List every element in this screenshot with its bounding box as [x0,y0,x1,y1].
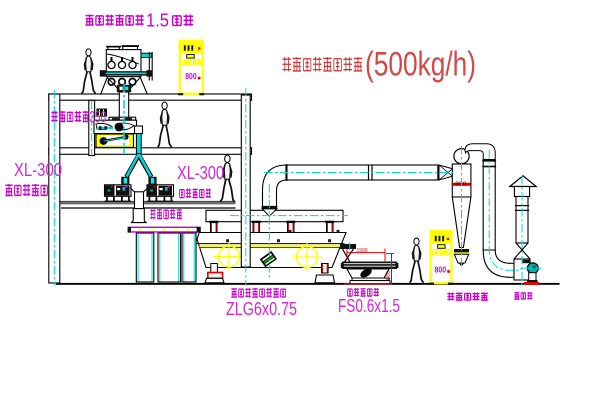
svg-text:ZLG6x0.75: ZLG6x0.75 [226,298,297,320]
svg-text:500: 500 [386,271,392,280]
svg-text:1500: 1500 [357,248,368,254]
svg-text:800: 800 [185,71,197,81]
svg-text:XL-300: XL-300 [14,160,62,181]
svg-text:800: 800 [435,264,447,274]
svg-text:1.5: 1.5 [146,11,169,31]
svg-text:(500kg/h): (500kg/h) [365,46,476,83]
svg-text:800: 800 [455,181,466,187]
svg-text:FS0.6x1.5: FS0.6x1.5 [338,296,400,316]
svg-text:XL-300: XL-300 [177,163,224,184]
svg-text:350: 350 [90,109,107,127]
